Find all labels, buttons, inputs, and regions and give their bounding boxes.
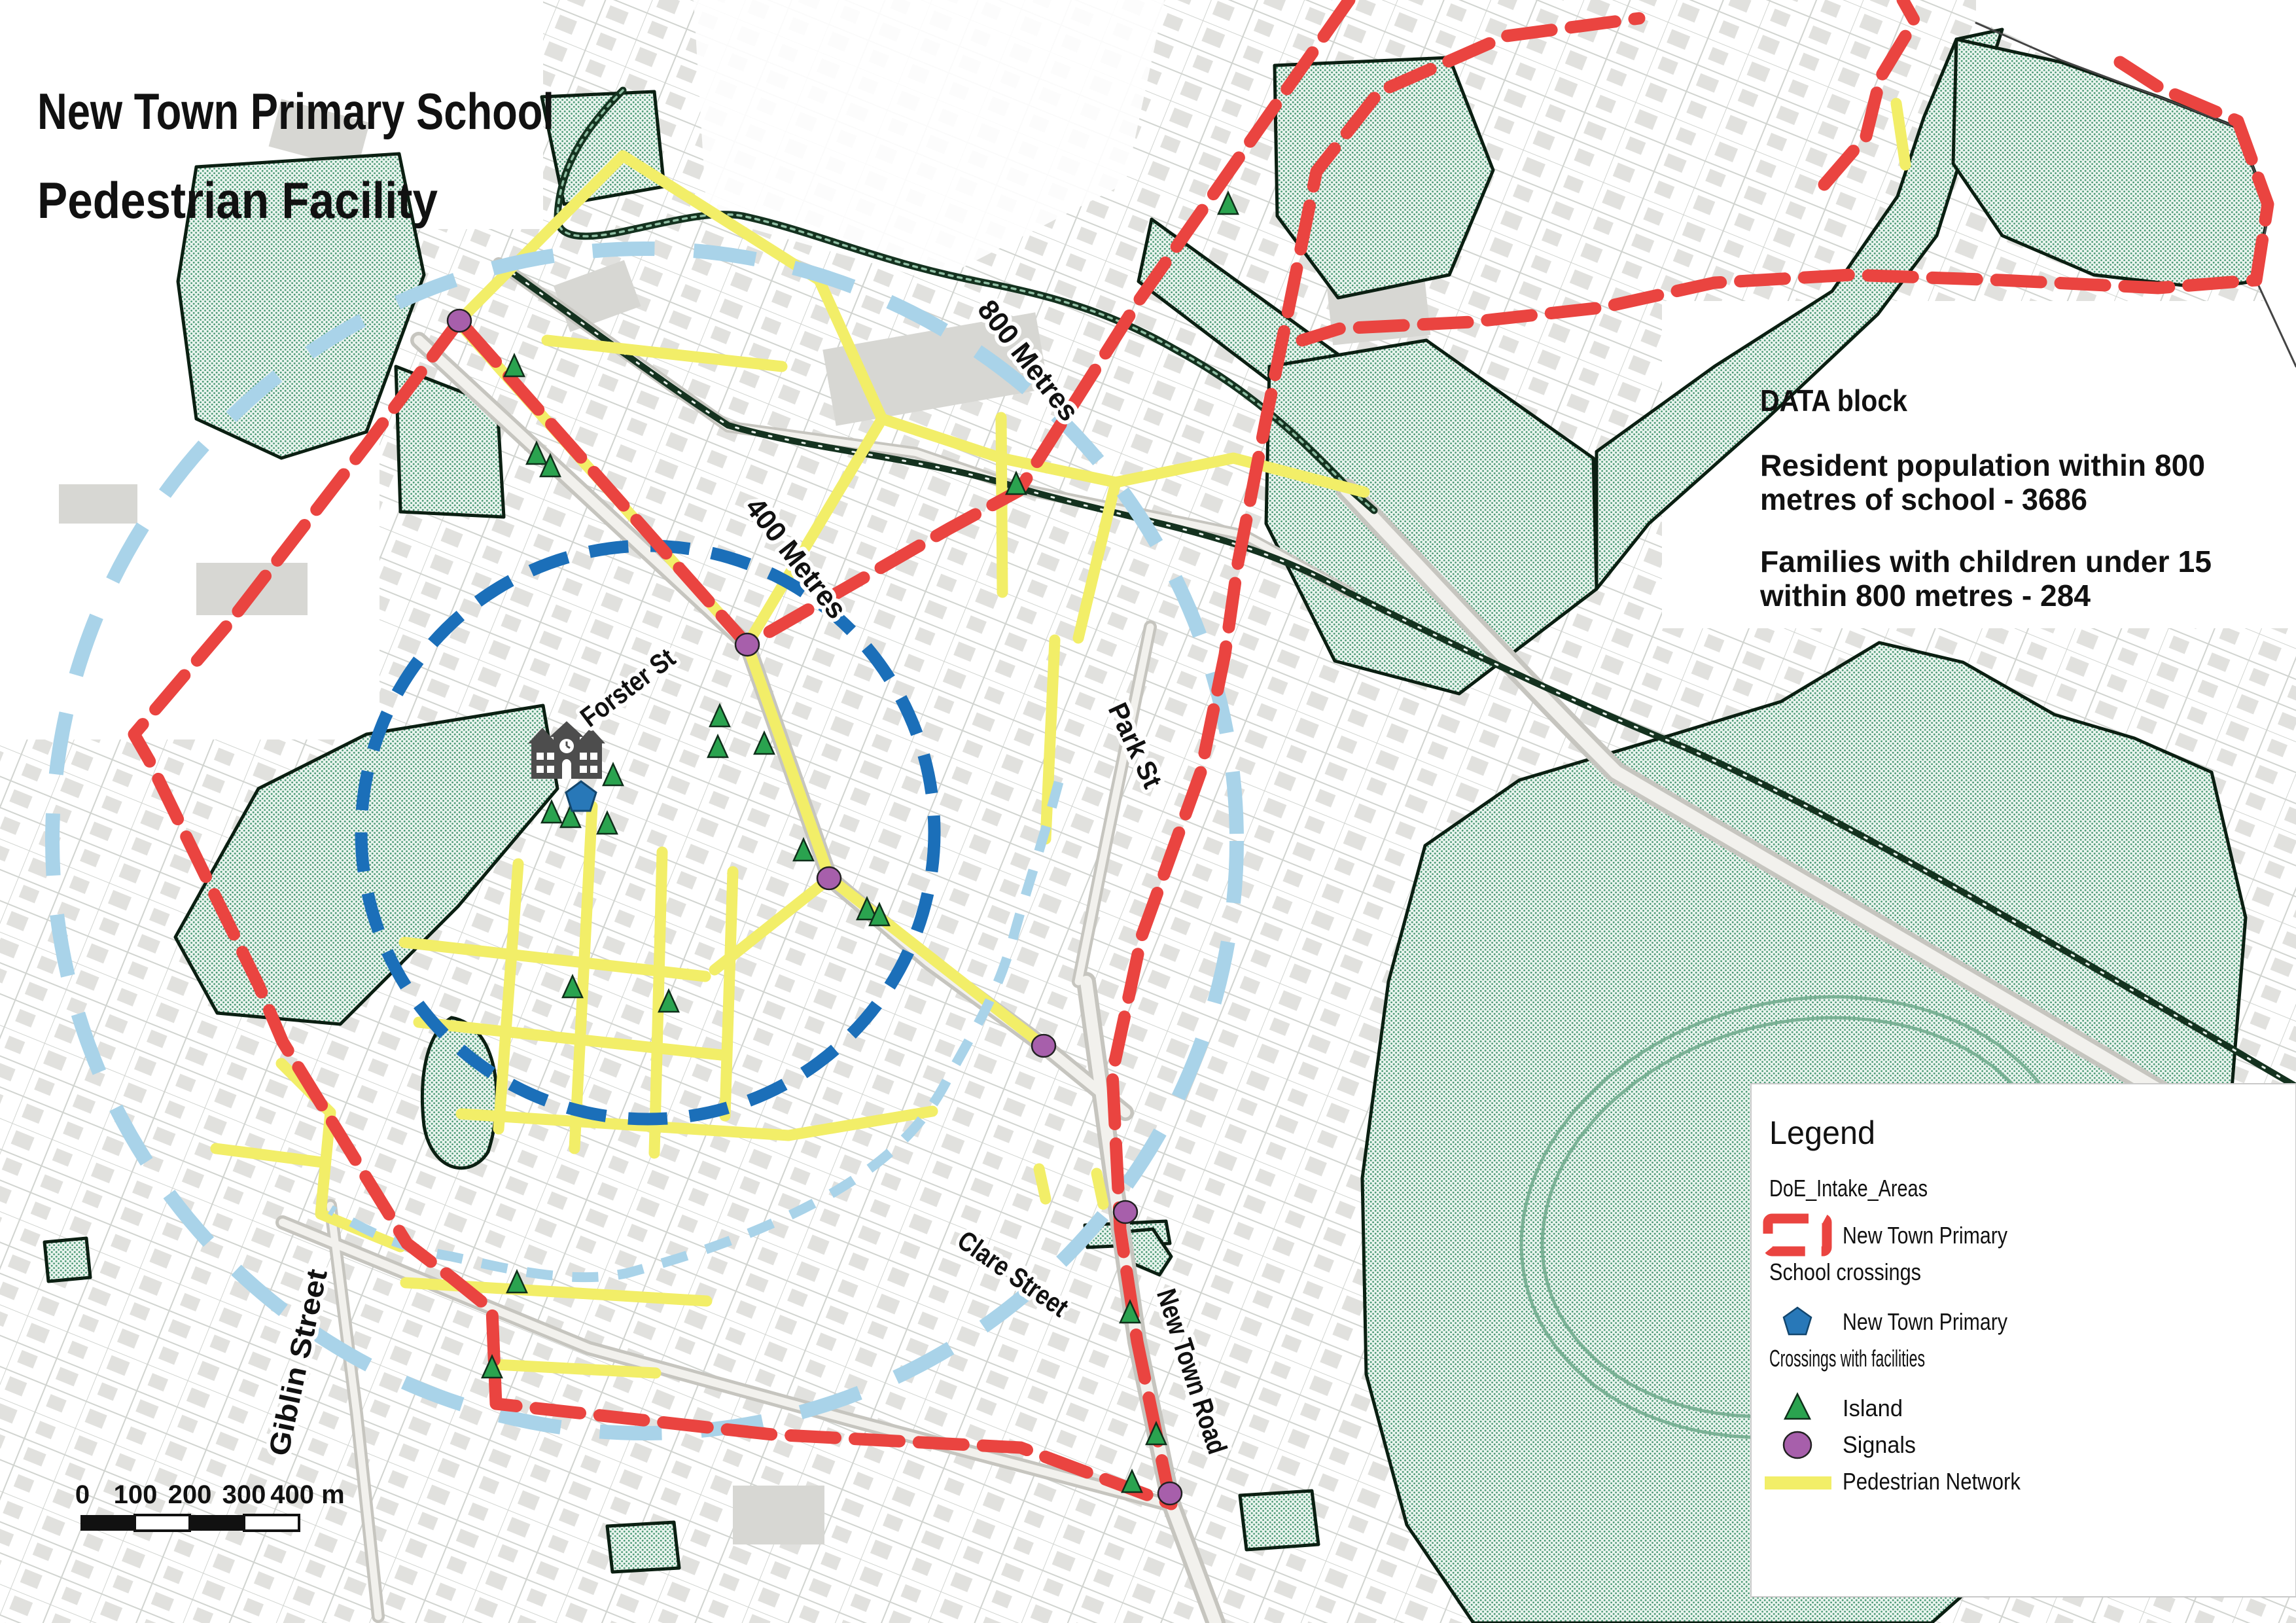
legend-island-label: Island: [1843, 1395, 1903, 1421]
signal-crossing-marker: [448, 310, 471, 332]
legend: Legend DoE_Intake_Areas New Town Primary…: [1751, 1084, 2296, 1597]
scale-label-100: 100: [114, 1480, 158, 1509]
signal-crossing-marker: [817, 867, 841, 889]
park-small: [607, 1522, 679, 1572]
legend-group-school: School crossings: [1769, 1258, 1921, 1285]
legend-signals-label: Signals: [1843, 1431, 1916, 1458]
signal-crossing-marker: [735, 633, 759, 656]
data-block-families-line2: within 800 metres - 284: [1759, 579, 2091, 613]
signals-swatch: [1784, 1432, 1811, 1458]
signal-crossing-marker: [1158, 1482, 1182, 1505]
map-canvas: Forster St Park St Giblin Street Clare S…: [0, 0, 2296, 1623]
signal-crossing-marker: [1032, 1035, 1055, 1057]
scale-label-400m: 400 m: [270, 1480, 344, 1509]
map-title-line1: New Town Primary School: [37, 82, 554, 140]
map-title-line2: Pedestrian Facility: [37, 171, 438, 229]
legend-intake-label: New Town Primary: [1843, 1222, 2007, 1249]
legend-title: Legend: [1769, 1115, 1875, 1151]
park-small: [1240, 1491, 1318, 1550]
legend-network-label: Pedestrian Network: [1843, 1468, 2021, 1495]
scale-label-200: 200: [168, 1480, 212, 1509]
signal-crossing-marker: [1114, 1201, 1137, 1223]
park-small: [44, 1238, 90, 1281]
scale-label-0: 0: [75, 1480, 90, 1509]
data-block-heading: DATA block: [1760, 383, 1907, 418]
legend-school-label: New Town Primary: [1843, 1308, 2007, 1335]
legend-group-crossings: Crossings with facilities: [1769, 1345, 1925, 1372]
data-block-families-line1: Families with children under 15: [1760, 544, 2212, 579]
legend-group-intake: DoE_Intake_Areas: [1769, 1175, 1928, 1202]
scale-label-300: 300: [222, 1480, 266, 1509]
pedestrian-network-swatch: [1765, 1476, 1831, 1489]
data-block-population-line1: Resident population within 800: [1760, 448, 2205, 482]
data-block-population-line2: metres of school - 3686: [1760, 482, 2087, 516]
legend-box: [1751, 1084, 2296, 1597]
